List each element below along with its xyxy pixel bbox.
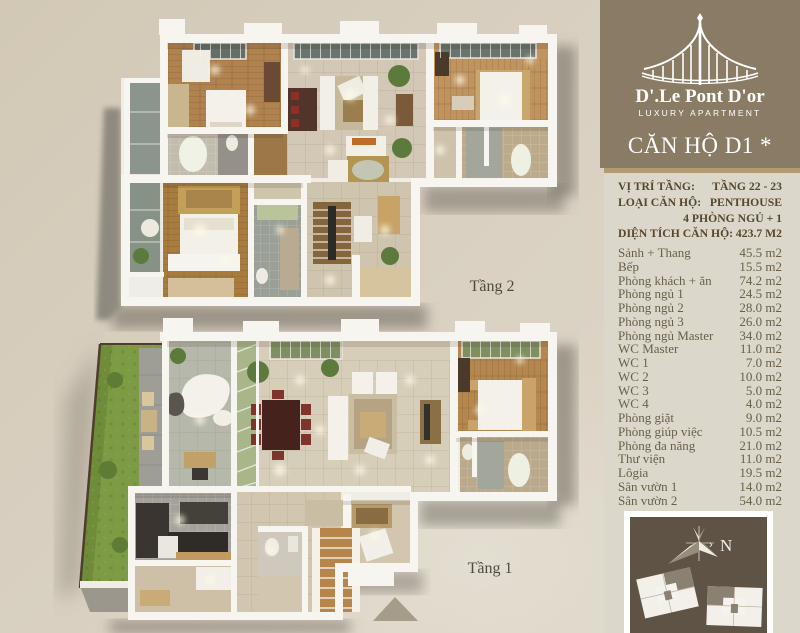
svg-text:Tầng 2: Tầng 2 [470, 278, 515, 295]
svg-text:Tầng 1: Tầng 1 [468, 560, 513, 577]
svg-text:N: N [720, 536, 732, 555]
svg-text:›: › [709, 539, 713, 551]
